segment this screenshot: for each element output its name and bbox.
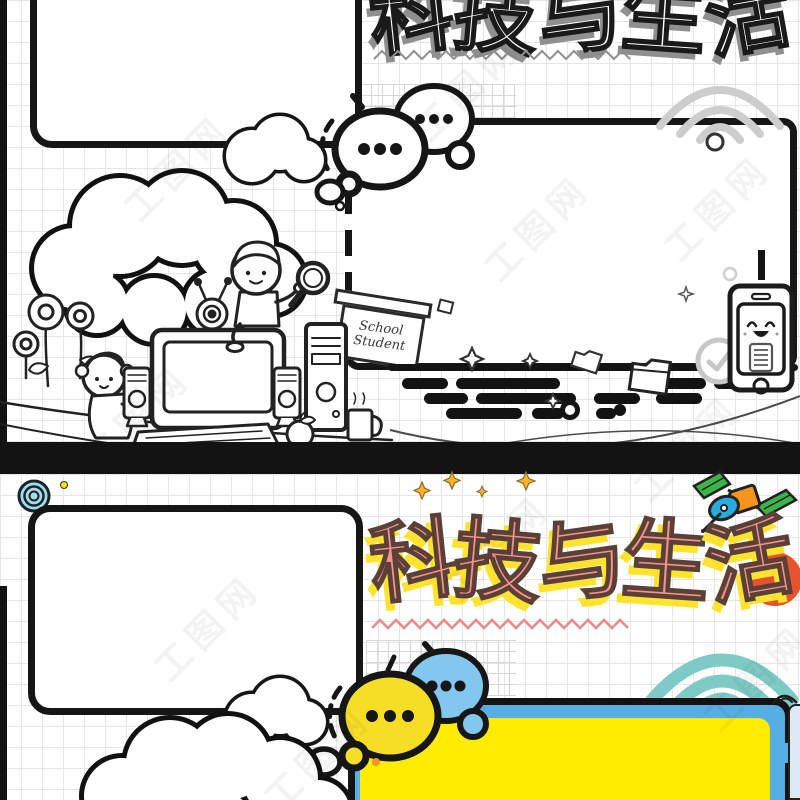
title-char: 技	[450, 515, 541, 610]
color-newsletter-page: 科 技 与 生 活	[0, 474, 800, 800]
star-icons	[410, 470, 540, 500]
sparkle-icon	[678, 286, 694, 302]
wifi-icon	[645, 48, 795, 153]
title-char: 与	[532, 513, 627, 612]
template-preview: 科 技 与 生 活	[0, 0, 800, 800]
phone-icon-partial	[788, 704, 800, 800]
kids-computer-illustration	[0, 226, 392, 460]
star-outline-icons	[458, 346, 578, 376]
pages-divider-bar	[0, 458, 800, 474]
title-char: 科	[366, 514, 459, 610]
star-outline-icon	[543, 392, 583, 416]
title-char: 活	[699, 511, 797, 612]
folder-icon-small	[570, 348, 604, 376]
page-left-border	[0, 586, 7, 800]
bw-newsletter-page: 科 技 与 生 活	[0, 0, 800, 458]
phone-icon	[722, 250, 800, 398]
phone-signal-arcs	[770, 688, 800, 704]
page-bottom-border	[0, 442, 800, 458]
yellow-dot	[60, 481, 68, 489]
zigzag-divider	[374, 50, 632, 62]
zigzag-divider	[372, 619, 630, 631]
title-char: 生	[619, 515, 709, 609]
page-title-color: 科 技 与 生 活	[370, 518, 790, 606]
thought-cloud	[66, 726, 366, 800]
folder-icon-large	[626, 356, 676, 400]
dot-decoration	[614, 404, 626, 416]
